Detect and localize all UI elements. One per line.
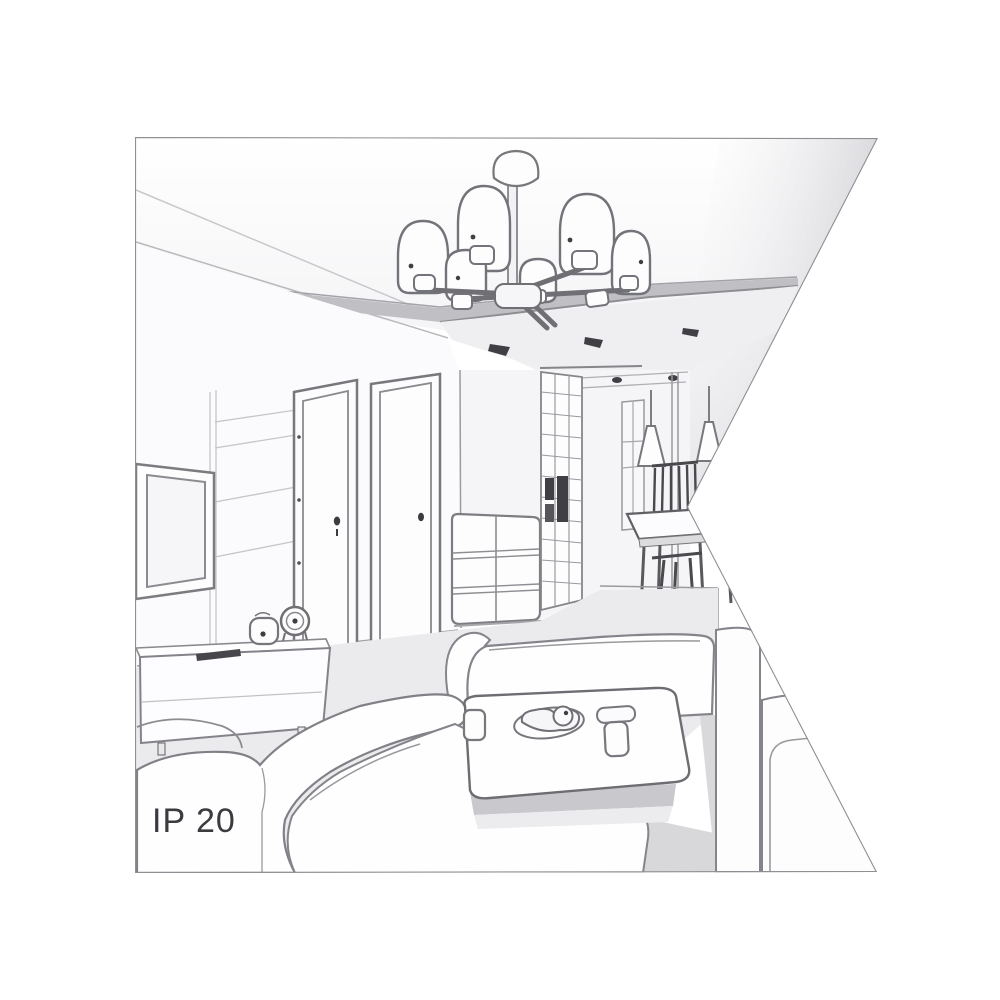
interior-door-right [371,374,440,652]
tv-frame [136,464,214,599]
cup [464,710,485,740]
spotlight-icon [668,375,678,381]
shelf-unit [541,372,582,610]
drawer-chest [452,514,542,626]
spotlight-icon [612,377,622,383]
product-scene-image: IP 20 [0,0,1000,1000]
coffee-table [464,688,689,829]
chandelier-hub [495,284,541,308]
chandelier-canopy [493,151,538,186]
cup [604,721,629,756]
door-handle-icon [334,517,340,526]
door-handle-icon [418,513,424,521]
room-illustration [0,0,1000,1000]
tray [597,706,636,724]
ip-rating-label: IP 20 [152,802,236,841]
sofa-right [716,628,877,872]
